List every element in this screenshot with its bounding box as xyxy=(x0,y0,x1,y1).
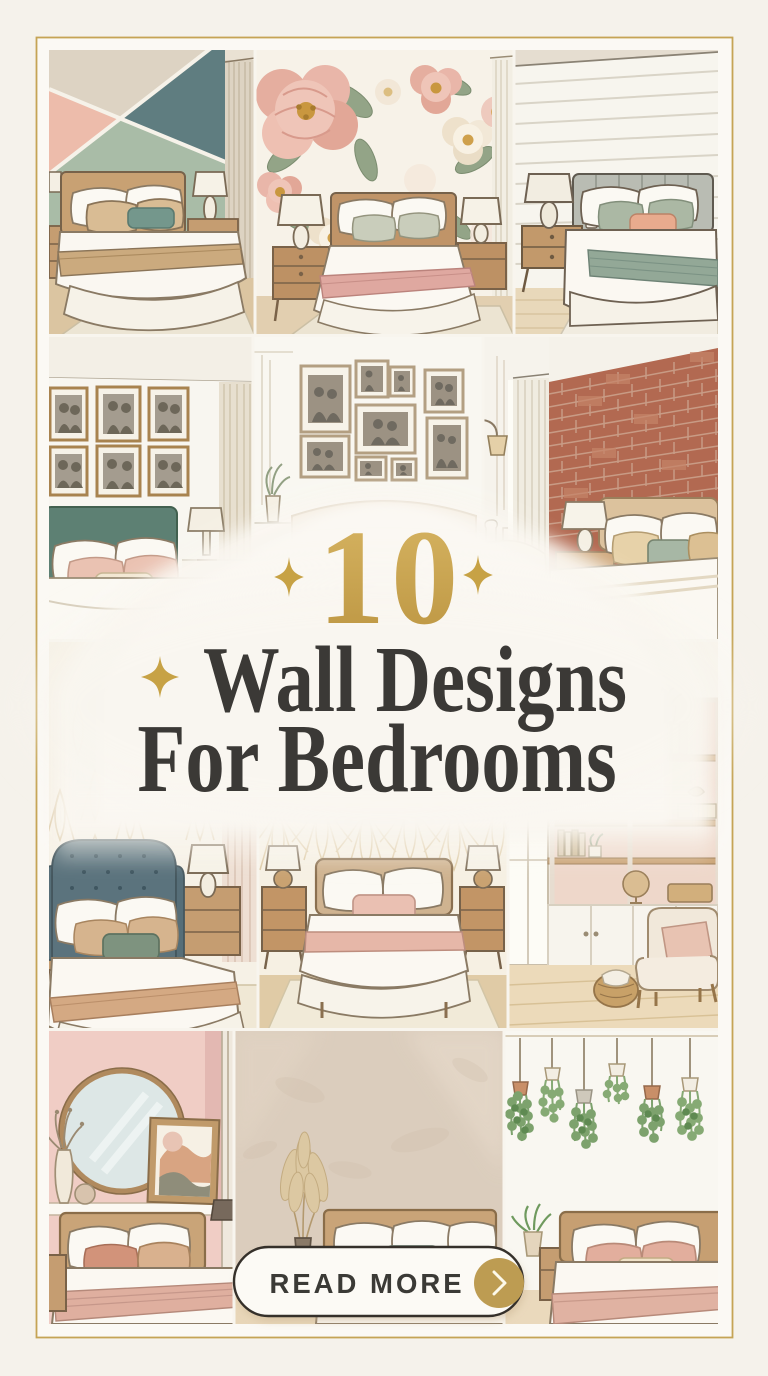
svg-text:For Bedrooms: For Bedrooms xyxy=(137,705,616,813)
svg-text:READ MORE: READ MORE xyxy=(269,1268,464,1299)
